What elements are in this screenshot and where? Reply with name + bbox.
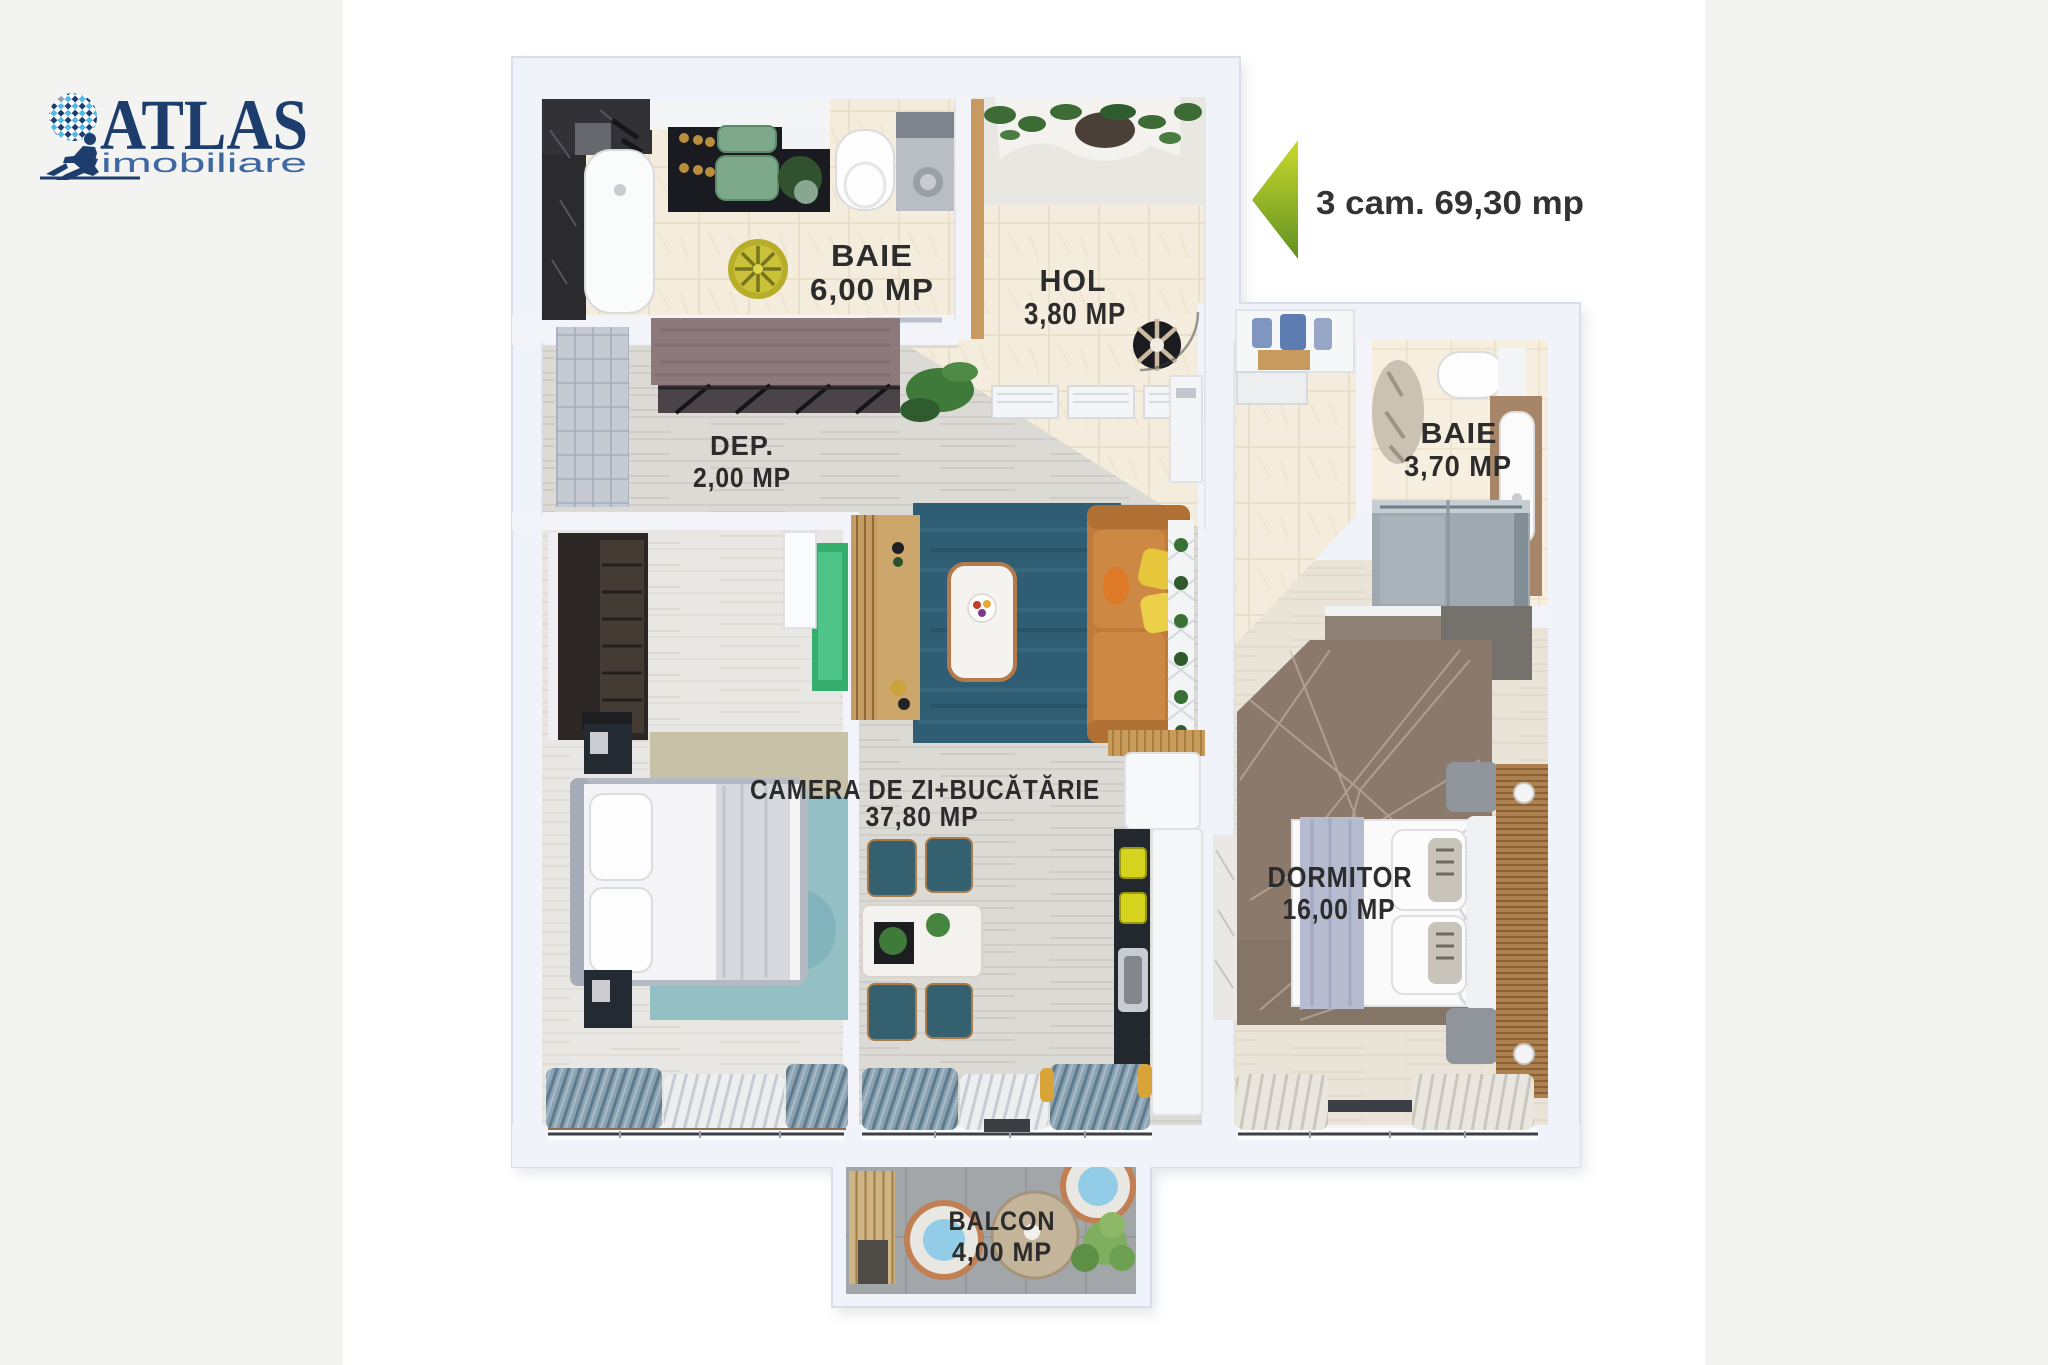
svg-text:3,70 MP: 3,70 MP [1404,451,1512,483]
svg-text:37,80 MP: 37,80 MP [866,801,979,832]
svg-text:2,00 MP: 2,00 MP [693,462,791,493]
svg-text:DEP.: DEP. [710,430,774,461]
svg-text:HOL: HOL [1040,263,1107,298]
svg-text:BAIE: BAIE [831,238,913,273]
svg-text:16,00 MP: 16,00 MP [1283,894,1396,926]
svg-text:4,00 MP: 4,00 MP [952,1237,1052,1267]
svg-text:6,00 MP: 6,00 MP [810,272,934,307]
svg-text:BAIE: BAIE [1421,418,1498,450]
svg-text:DORMITOR: DORMITOR [1268,862,1413,894]
svg-text:3,80 MP: 3,80 MP [1024,296,1126,331]
svg-text:imobiliare: imobiliare [101,148,307,178]
svg-text:BALCON: BALCON [949,1206,1056,1236]
svg-text:3 cam. 69,30 mp: 3 cam. 69,30 mp [1316,184,1584,221]
